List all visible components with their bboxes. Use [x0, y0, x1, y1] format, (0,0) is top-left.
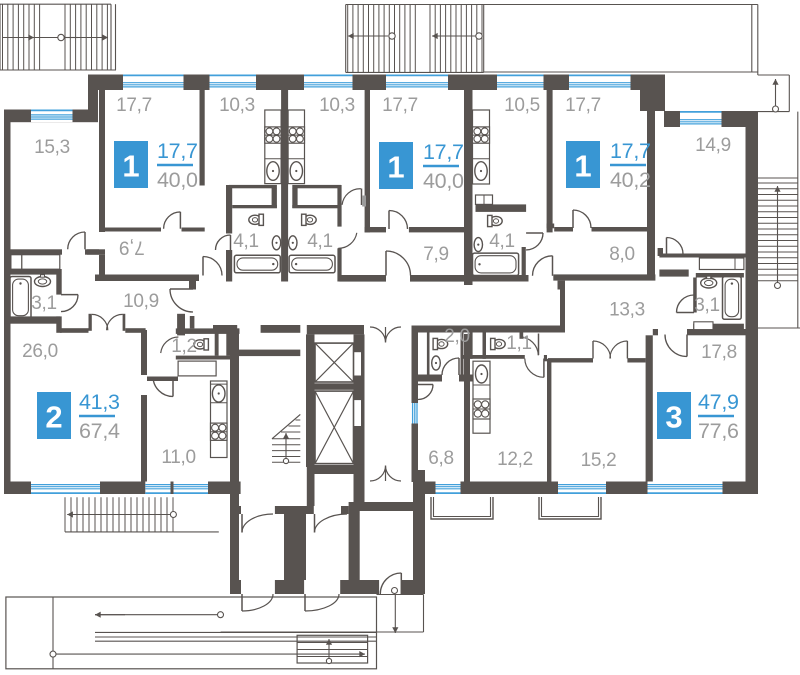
- svg-text:17,7: 17,7: [116, 95, 152, 116]
- svg-text:47,9: 47,9: [698, 390, 739, 414]
- svg-text:17,7: 17,7: [157, 139, 198, 163]
- svg-text:11,0: 11,0: [161, 447, 195, 468]
- svg-text:17,7: 17,7: [382, 95, 418, 116]
- svg-text:77,6: 77,6: [698, 419, 739, 443]
- svg-text:6,8: 6,8: [428, 448, 454, 469]
- svg-text:10,3: 10,3: [219, 95, 255, 116]
- svg-text:7,9: 7,9: [423, 244, 449, 265]
- svg-text:2,0: 2,0: [444, 326, 470, 347]
- svg-text:17,8: 17,8: [701, 342, 737, 363]
- svg-text:41,3: 41,3: [79, 390, 120, 414]
- svg-text:10,5: 10,5: [504, 95, 540, 116]
- svg-text:15,3: 15,3: [34, 137, 70, 158]
- svg-text:7,9: 7,9: [119, 236, 145, 257]
- svg-text:4,1: 4,1: [307, 231, 333, 252]
- svg-text:17,7: 17,7: [565, 95, 601, 116]
- svg-text:40,0: 40,0: [423, 169, 464, 193]
- svg-text:17,7: 17,7: [423, 140, 464, 164]
- svg-text:1,1: 1,1: [506, 333, 532, 354]
- svg-text:10,3: 10,3: [319, 95, 355, 116]
- svg-text:10,9: 10,9: [123, 291, 159, 312]
- svg-text:40,0: 40,0: [157, 168, 198, 192]
- svg-text:1: 1: [574, 149, 591, 184]
- svg-text:1: 1: [122, 149, 139, 184]
- svg-text:40,2: 40,2: [610, 168, 651, 192]
- svg-text:1: 1: [387, 150, 404, 185]
- svg-text:3,1: 3,1: [694, 295, 720, 316]
- svg-text:8,0: 8,0: [609, 244, 635, 265]
- svg-text:4,1: 4,1: [489, 231, 515, 252]
- svg-text:1,2: 1,2: [171, 336, 197, 357]
- svg-text:2: 2: [45, 400, 62, 435]
- svg-text:67,4: 67,4: [79, 419, 120, 443]
- svg-text:14,9: 14,9: [695, 135, 731, 156]
- svg-text:3: 3: [665, 400, 682, 435]
- svg-text:4,1: 4,1: [233, 231, 259, 252]
- svg-text:3,1: 3,1: [31, 293, 57, 314]
- svg-text:17,7: 17,7: [610, 139, 651, 163]
- svg-text:13,3: 13,3: [609, 300, 645, 321]
- svg-text:12,2: 12,2: [497, 449, 533, 470]
- svg-text:15,2: 15,2: [581, 450, 617, 471]
- svg-text:26,0: 26,0: [22, 341, 58, 362]
